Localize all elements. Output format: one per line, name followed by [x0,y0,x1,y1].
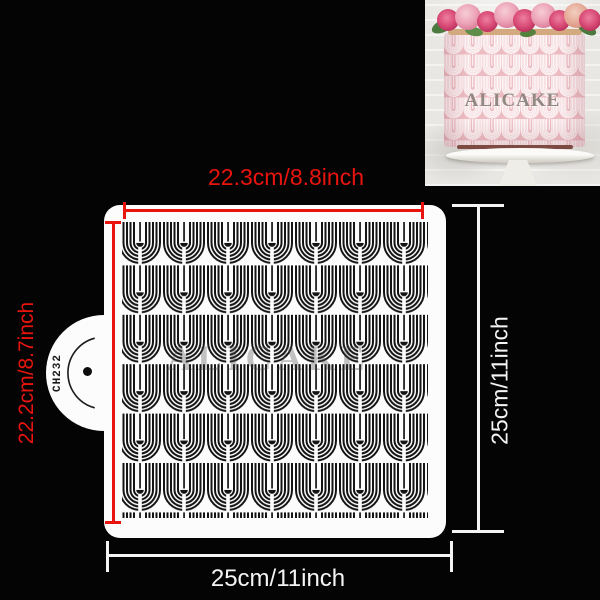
dimension-bottom-label: 25cm/11inch [128,565,428,593]
dimension-left-label: 22.2cm/8.7inch [15,273,39,473]
dimension-tick [105,221,121,224]
dimension-line [107,554,453,557]
dimension-tick [452,530,504,533]
dimension-tick [450,541,453,572]
dimension-tick [105,521,121,524]
dimension-line [477,205,480,533]
dimension-line [112,221,115,524]
product-image: ALICAKE CH232 ALICAKE 22.3cm/8.8inch 22.… [0,0,600,600]
stencil-hanging-tab: CH232 [46,315,104,431]
dimension-tick [452,204,504,207]
cake-stand-stem [499,160,537,186]
dimension-right-label: 25cm/11inch [487,281,514,481]
inset-watermark: ALICAKE [433,90,592,112]
rose-blossom [579,9,600,31]
dimension-tick [106,541,109,572]
dimension-tick [421,202,424,219]
stencil-code: CH232 [52,338,66,408]
dimension-top-label: 22.3cm/8.8inch [136,164,436,191]
stencil-watermark: ALICAKE [118,337,418,379]
dimension-line [125,209,424,212]
hanging-hole [83,367,92,376]
cake-photo-inset: ALICAKE [425,0,600,186]
dimension-tick [123,202,126,219]
